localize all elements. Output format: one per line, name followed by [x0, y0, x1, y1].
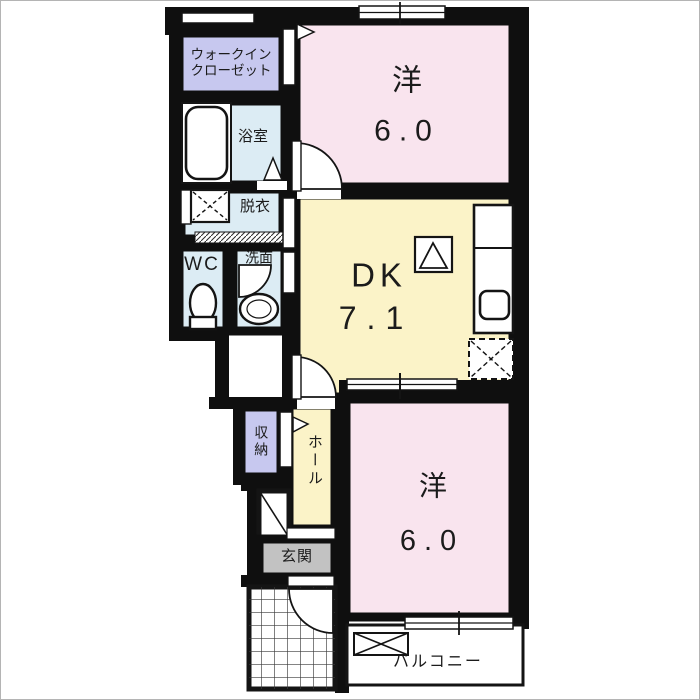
hall-door-gap	[297, 397, 335, 409]
dressing-door-opening	[283, 198, 295, 248]
door-leaf	[292, 355, 301, 399]
wic-door-opening	[283, 29, 295, 85]
room-size-dk: 7.1	[339, 300, 413, 338]
entrance-sill	[288, 576, 334, 586]
bath-door-gap	[257, 181, 287, 190]
toilet-tank	[190, 317, 216, 329]
floor-plan-drawing	[1, 1, 699, 699]
room-bedroom-bottom	[346, 399, 513, 617]
kitchen-sink-icon	[480, 291, 509, 319]
wall-above-storage-2	[209, 397, 297, 409]
room-label-dressing: 脱衣	[240, 198, 270, 216]
sliding-rail-hatch	[195, 232, 285, 243]
room-label-bedroom-top: 洋	[392, 63, 422, 98]
room-label-wc: WC	[184, 254, 220, 276]
closet-opening	[182, 13, 254, 23]
room-size-bedroom-bottom: 6.0	[400, 524, 464, 558]
room-label-dk: DK	[351, 257, 407, 296]
floor-plan: ウォークイン クローゼット 浴室 脱衣 WC 洗面 洋 6.0 DK 7.1 洋…	[0, 0, 700, 700]
dressing-cabinet	[181, 190, 191, 224]
entrance-step	[287, 528, 335, 539]
room-label-bedroom-bottom: 洋	[419, 469, 447, 502]
room-label-hall: ホール	[305, 434, 323, 488]
room-label-storage: 収納	[253, 425, 270, 459]
bathtub-icon	[186, 107, 227, 179]
room-size-bedroom-top: 6.0	[374, 113, 440, 148]
door-leaf	[292, 141, 301, 191]
storage-door-opening	[280, 412, 292, 467]
room-label-bath: 浴室	[238, 128, 268, 146]
washroom-door-opening	[283, 252, 295, 293]
room-label-balcony: バルコニー	[393, 654, 483, 673]
room-label-entrance: 玄関	[281, 548, 313, 566]
room-label-washroom: 洗面	[245, 250, 273, 267]
room-label-wic: ウォークイン クローゼット	[191, 47, 272, 79]
washbasin-icon	[240, 294, 278, 324]
